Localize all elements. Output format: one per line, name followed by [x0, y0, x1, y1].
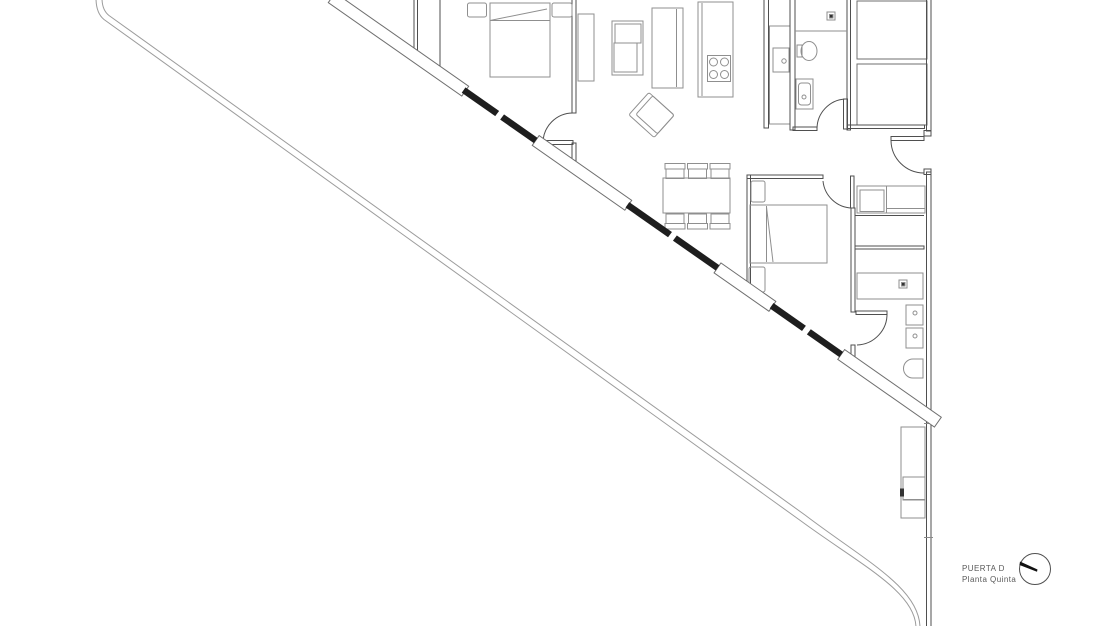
desk-unit [612, 21, 643, 75]
washbasin2-lower-faucet [913, 334, 917, 338]
desk-top [614, 43, 637, 72]
entrance [847, 125, 931, 175]
bed2-nightstand-top [751, 181, 765, 202]
bathroom-2 [856, 273, 923, 378]
facade-pier [532, 136, 631, 211]
shower1-drain-dot [830, 15, 834, 19]
core-shafts [857, 1, 927, 125]
chair-back [710, 224, 730, 230]
armchair-seat [636, 96, 674, 134]
washbasin1-bowl [799, 83, 811, 105]
bedroom-1 [468, 0, 595, 168]
bedroom2-door-leaf [851, 176, 855, 208]
bedroom-2 [747, 175, 855, 366]
kitchen [698, 0, 795, 130]
bedroom2-right-wall [851, 208, 855, 312]
dining-set [663, 164, 730, 230]
dining-table [663, 178, 730, 213]
armchair-outer [629, 92, 674, 137]
chair-seat [689, 169, 707, 179]
entrance-door-swing-arc [891, 141, 924, 174]
compass-needle [1020, 562, 1038, 572]
hall-north-wall [847, 125, 925, 129]
bed1-nightstand-left [468, 3, 487, 17]
plan-title-door: PUERTA D [962, 564, 1005, 573]
bed2 [750, 205, 827, 263]
tall-cabinet [652, 8, 683, 88]
glazing-mullion-notch [670, 235, 675, 239]
living-dining [612, 8, 730, 229]
bed1-nightstand-right [552, 3, 572, 17]
toilet1-bowl [801, 42, 817, 61]
title-block: PUERTA D Planta Quinta [962, 554, 1051, 585]
burner [721, 58, 729, 66]
glazing-mullion-notch [804, 328, 809, 332]
facade-pier [838, 350, 942, 428]
facade-pier [328, 0, 468, 96]
entrance-door-leaf [891, 137, 924, 141]
chair-back [710, 164, 730, 170]
shower2-tray [857, 273, 923, 299]
utility-unit-mark [900, 489, 904, 497]
kitchen-front-wall [764, 0, 769, 128]
closet-left-compartment [860, 190, 884, 212]
facade-pier [714, 263, 776, 311]
terrace-railing-inner-line [102, 0, 920, 626]
bedroom1-right-wall [572, 0, 576, 113]
bed2-sheet-fold [767, 207, 774, 262]
bathroom1-south-wall [793, 127, 817, 131]
kitchen-island [698, 2, 733, 97]
utility-unit-inner [903, 477, 925, 500]
chair-seat [711, 214, 729, 224]
chair-back [665, 224, 685, 230]
bathroom2-door-leaf [856, 311, 887, 315]
sink-faucet [782, 59, 786, 63]
burner [710, 58, 718, 66]
floor-plan-drawing: PUERTA D Planta Quinta [0, 0, 1110, 626]
chair-back [688, 224, 708, 230]
chair-seat [711, 169, 729, 179]
glazing-mullion-notch [497, 114, 502, 118]
bathroom2-north-wall [855, 246, 924, 249]
core-shaft-upper [857, 1, 927, 59]
bedroom1-wardrobe [578, 14, 594, 81]
facade [328, 0, 941, 427]
chair-seat [666, 214, 684, 224]
kitchen-sink [773, 48, 789, 72]
hall-closet [855, 186, 925, 249]
bathroom1-door-swing-arc [817, 99, 845, 129]
kitchen-counter [770, 26, 791, 124]
chair-back [688, 164, 708, 170]
right-wall-lower [927, 172, 932, 626]
floor-plan-sheet: PUERTA D Planta Quinta [0, 0, 1110, 626]
burner [721, 71, 729, 79]
kitchen-bathroom-wall [790, 0, 795, 130]
bathroom2-door-swing-arc [857, 313, 887, 345]
toilet2 [904, 359, 924, 378]
plan-title-floor: Planta Quinta [962, 575, 1016, 584]
bedroom2-door-swing-arc [823, 181, 852, 208]
bedroom2-north-wall [747, 175, 823, 179]
bedroom1-door-swing-arc [543, 113, 573, 143]
chair-back [665, 164, 685, 170]
core-shaft-lower [857, 64, 927, 125]
bed1-sheet-fold [490, 9, 547, 21]
chair-seat [689, 214, 707, 224]
burner [710, 71, 718, 79]
shower2-drain-dot [902, 283, 906, 287]
bathroom-1 [793, 0, 851, 131]
washbasin1-faucet [802, 95, 806, 99]
chair-seat [666, 169, 684, 179]
armchair [629, 92, 674, 137]
desk-chair [615, 24, 641, 43]
compass-north-arrow-icon [1020, 554, 1051, 585]
utility-unit [901, 427, 925, 518]
washbasin2-upper-faucet [913, 311, 917, 315]
